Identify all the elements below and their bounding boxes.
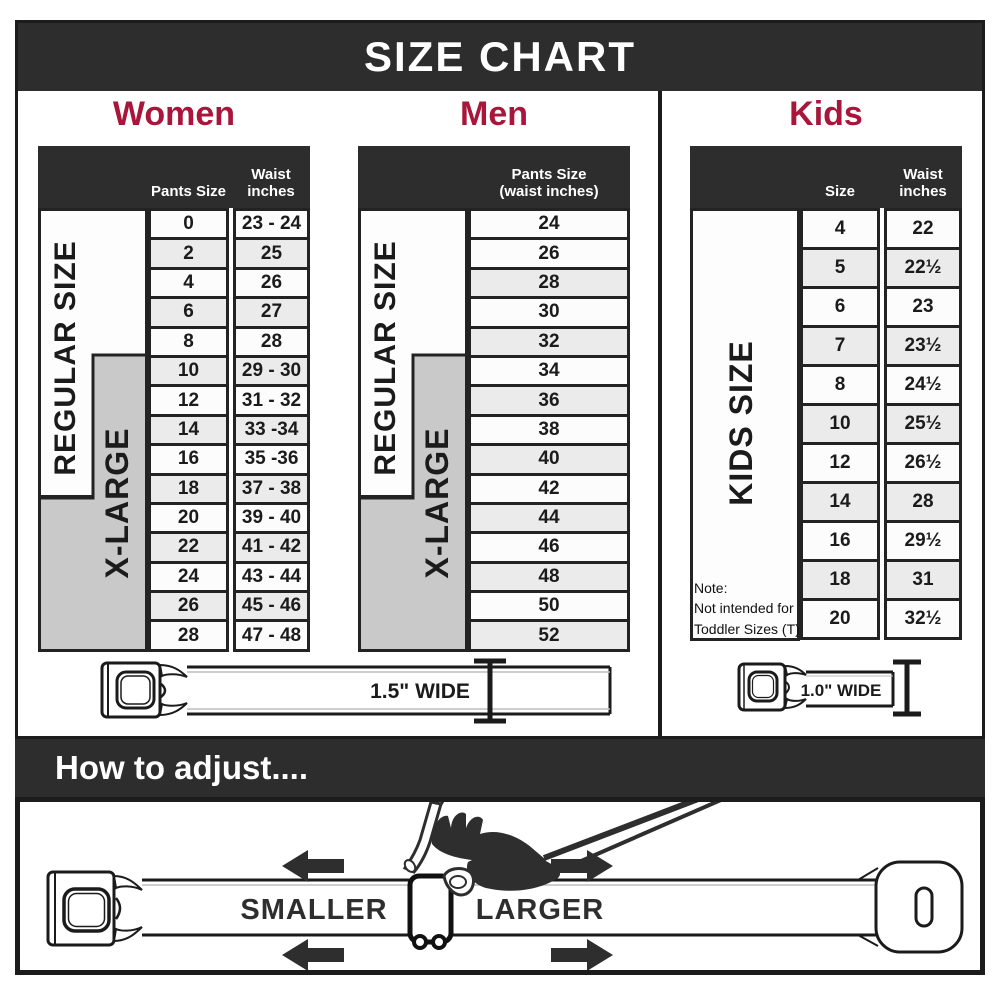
size-cell: 29 - 30 (233, 355, 310, 387)
size-row: 1837 - 38 (148, 473, 310, 505)
size-chart-panel: SIZE CHART Women Men Kids Pants Size Wai… (15, 20, 985, 739)
size-row: 2443 - 44 (148, 561, 310, 593)
size-cell: 7 (800, 325, 880, 367)
size-row: 24 (468, 208, 630, 240)
size-row: 828 (148, 326, 310, 358)
size-cell: 43 - 44 (233, 561, 310, 593)
size-cell: 6 (148, 296, 229, 328)
kids-size-category-zone: KIDS SIZE (690, 208, 800, 641)
size-row: 623 (800, 286, 962, 328)
size-cell: 28 (148, 619, 229, 651)
size-cell: 0 (148, 208, 229, 240)
men-size-category-zone: REGULAR SIZE X-LARGE (358, 208, 468, 652)
size-cell: 28 (233, 326, 310, 358)
size-cell: 14 (800, 481, 880, 523)
size-row: 2241 - 42 (148, 531, 310, 563)
women-rows: 023 - 242254266278281029 - 301231 - 3214… (148, 208, 310, 652)
size-cell: 45 - 46 (233, 590, 310, 622)
adult-belt-illustration: 1.5" WIDE (90, 653, 655, 731)
size-cell: 29½ (884, 520, 962, 562)
size-cell: 47 - 48 (233, 619, 310, 651)
men-regular-size-label: REGULAR SIZE (369, 240, 402, 475)
size-row: 1226½ (800, 442, 962, 484)
kids-table-header: Size Waist inches (690, 146, 962, 208)
size-cell: 20 (148, 502, 229, 534)
larger-label: LARGER (476, 894, 604, 926)
kids-col-waist: Waist inches (884, 166, 962, 201)
kids-belt-width-label: 1.0" WIDE (801, 681, 882, 700)
size-row: 627 (148, 296, 310, 328)
men-x-large-label: X-LARGE (419, 428, 455, 579)
size-cell: 12 (148, 384, 229, 416)
size-row: 30 (468, 296, 630, 328)
size-row: 42 (468, 473, 630, 505)
size-cell: 10 (800, 403, 880, 445)
size-cell: 31 (884, 559, 962, 601)
women-col-waist: Waist inches (232, 166, 310, 201)
size-row: 1635 -36 (148, 443, 310, 475)
size-cell: 30 (468, 296, 630, 328)
size-cell: 8 (148, 326, 229, 358)
women-table-header: Pants Size Waist inches (38, 146, 310, 208)
men-heading: Men (358, 95, 630, 137)
size-cell: 5 (800, 247, 880, 289)
size-cell: 23 - 24 (233, 208, 310, 240)
men-rows: 242628303234363840424446485052 (468, 208, 630, 652)
size-row: 1428 (800, 481, 962, 523)
size-cell: 22 (884, 208, 962, 250)
size-cell: 25 (233, 237, 310, 269)
size-cell: 36 (468, 384, 630, 416)
how-to-adjust-band: How to adjust.... (15, 739, 985, 797)
size-cell: 18 (800, 559, 880, 601)
adjustment-diagram-panel: SMALLER LARGER (15, 797, 985, 975)
size-cell: 32 (468, 326, 630, 358)
size-row: 522½ (800, 247, 962, 289)
size-cell: 27 (233, 296, 310, 328)
size-row: 1831 (800, 559, 962, 601)
size-cell: 50 (468, 590, 630, 622)
size-cell: 39 - 40 (233, 502, 310, 534)
size-cell: 38 (468, 414, 630, 446)
adjustment-diagram: SMALLER LARGER (20, 802, 980, 970)
size-cell: 24½ (884, 364, 962, 406)
size-cell: 31 - 32 (233, 384, 310, 416)
size-cell: 25½ (884, 403, 962, 445)
size-row: 2645 - 46 (148, 590, 310, 622)
kids-rows: 422522½623723½824½1025½1226½14281629½183… (800, 208, 962, 640)
size-row: 723½ (800, 325, 962, 367)
size-row: 2039 - 40 (148, 502, 310, 534)
section-divider (658, 91, 662, 736)
size-row: 225 (148, 237, 310, 269)
size-row: 40 (468, 443, 630, 475)
size-cell: 14 (148, 414, 229, 446)
size-cell: 48 (468, 561, 630, 593)
size-cell: 40 (468, 443, 630, 475)
size-row: 1029 - 30 (148, 355, 310, 387)
size-cell: 20 (800, 598, 880, 640)
size-cell: 26 (148, 590, 229, 622)
size-row: 32 (468, 326, 630, 358)
women-x-large-label: X-LARGE (99, 428, 135, 579)
kids-heading: Kids (690, 95, 962, 137)
how-to-adjust-heading: How to adjust.... (15, 749, 308, 787)
smaller-label: SMALLER (240, 894, 387, 926)
size-row: 1629½ (800, 520, 962, 562)
tables-area: Women Men Kids Pants Size Waist inches (18, 91, 982, 736)
size-row: 1231 - 32 (148, 384, 310, 416)
size-cell: 41 - 42 (233, 531, 310, 563)
size-row: 44 (468, 502, 630, 534)
size-cell: 26½ (884, 442, 962, 484)
size-row: 48 (468, 561, 630, 593)
size-row: 1433 -34 (148, 414, 310, 446)
size-cell: 2 (148, 237, 229, 269)
size-row: 38 (468, 414, 630, 446)
size-row: 50 (468, 590, 630, 622)
women-heading: Women (38, 95, 310, 137)
women-regular-size-label: REGULAR SIZE (49, 240, 82, 475)
size-cell: 28 (884, 481, 962, 523)
size-cell: 4 (800, 208, 880, 250)
size-row: 28 (468, 267, 630, 299)
page-title: SIZE CHART (364, 33, 636, 81)
size-row: 1025½ (800, 403, 962, 445)
women-col-pants-size: Pants Size (148, 183, 229, 201)
size-cell: 24 (148, 561, 229, 593)
size-cell: 46 (468, 531, 630, 563)
size-row: 46 (468, 531, 630, 563)
size-cell: 6 (800, 286, 880, 328)
size-row: 422 (800, 208, 962, 250)
kids-col-size: Size (800, 183, 880, 201)
size-cell: 52 (468, 619, 630, 651)
size-row: 023 - 24 (148, 208, 310, 240)
size-cell: 37 - 38 (233, 473, 310, 505)
size-cell: 32½ (884, 598, 962, 640)
kids-note: Note: Not intended for Toddler Sizes (T) (694, 578, 804, 639)
kids-size-label: KIDS SIZE (723, 340, 759, 505)
size-row: 52 (468, 619, 630, 651)
size-cell: 4 (148, 267, 229, 299)
size-cell: 23 (884, 286, 962, 328)
size-cell: 34 (468, 355, 630, 387)
men-col-pants-size: Pants Size (waist inches) (468, 166, 630, 201)
size-cell: 33 -34 (233, 414, 310, 446)
size-row: 2847 - 48 (148, 619, 310, 651)
size-chart-page: SIZE CHART Women Men Kids Pants Size Wai… (0, 0, 1000, 1000)
size-row: 34 (468, 355, 630, 387)
size-cell: 12 (800, 442, 880, 484)
women-size-category-zone: REGULAR SIZE X-LARGE (38, 208, 148, 652)
size-row: 426 (148, 267, 310, 299)
size-cell: 16 (800, 520, 880, 562)
size-cell: 24 (468, 208, 630, 240)
size-row: 824½ (800, 364, 962, 406)
men-table-header: Pants Size (waist inches) (358, 146, 630, 208)
size-cell: 28 (468, 267, 630, 299)
size-cell: 8 (800, 364, 880, 406)
size-cell: 44 (468, 502, 630, 534)
adult-belt-width-label: 1.5" WIDE (370, 680, 470, 703)
kids-belt-illustration: 1.0" WIDE (735, 656, 935, 718)
title-band: SIZE CHART (18, 23, 982, 91)
size-row: 2032½ (800, 598, 962, 640)
size-cell: 16 (148, 443, 229, 475)
size-cell: 10 (148, 355, 229, 387)
size-cell: 26 (233, 267, 310, 299)
size-cell: 26 (468, 237, 630, 269)
size-cell: 42 (468, 473, 630, 505)
size-cell: 18 (148, 473, 229, 505)
size-row: 26 (468, 237, 630, 269)
size-row: 36 (468, 384, 630, 416)
size-cell: 22 (148, 531, 229, 563)
size-cell: 22½ (884, 247, 962, 289)
size-cell: 35 -36 (233, 443, 310, 475)
size-cell: 23½ (884, 325, 962, 367)
